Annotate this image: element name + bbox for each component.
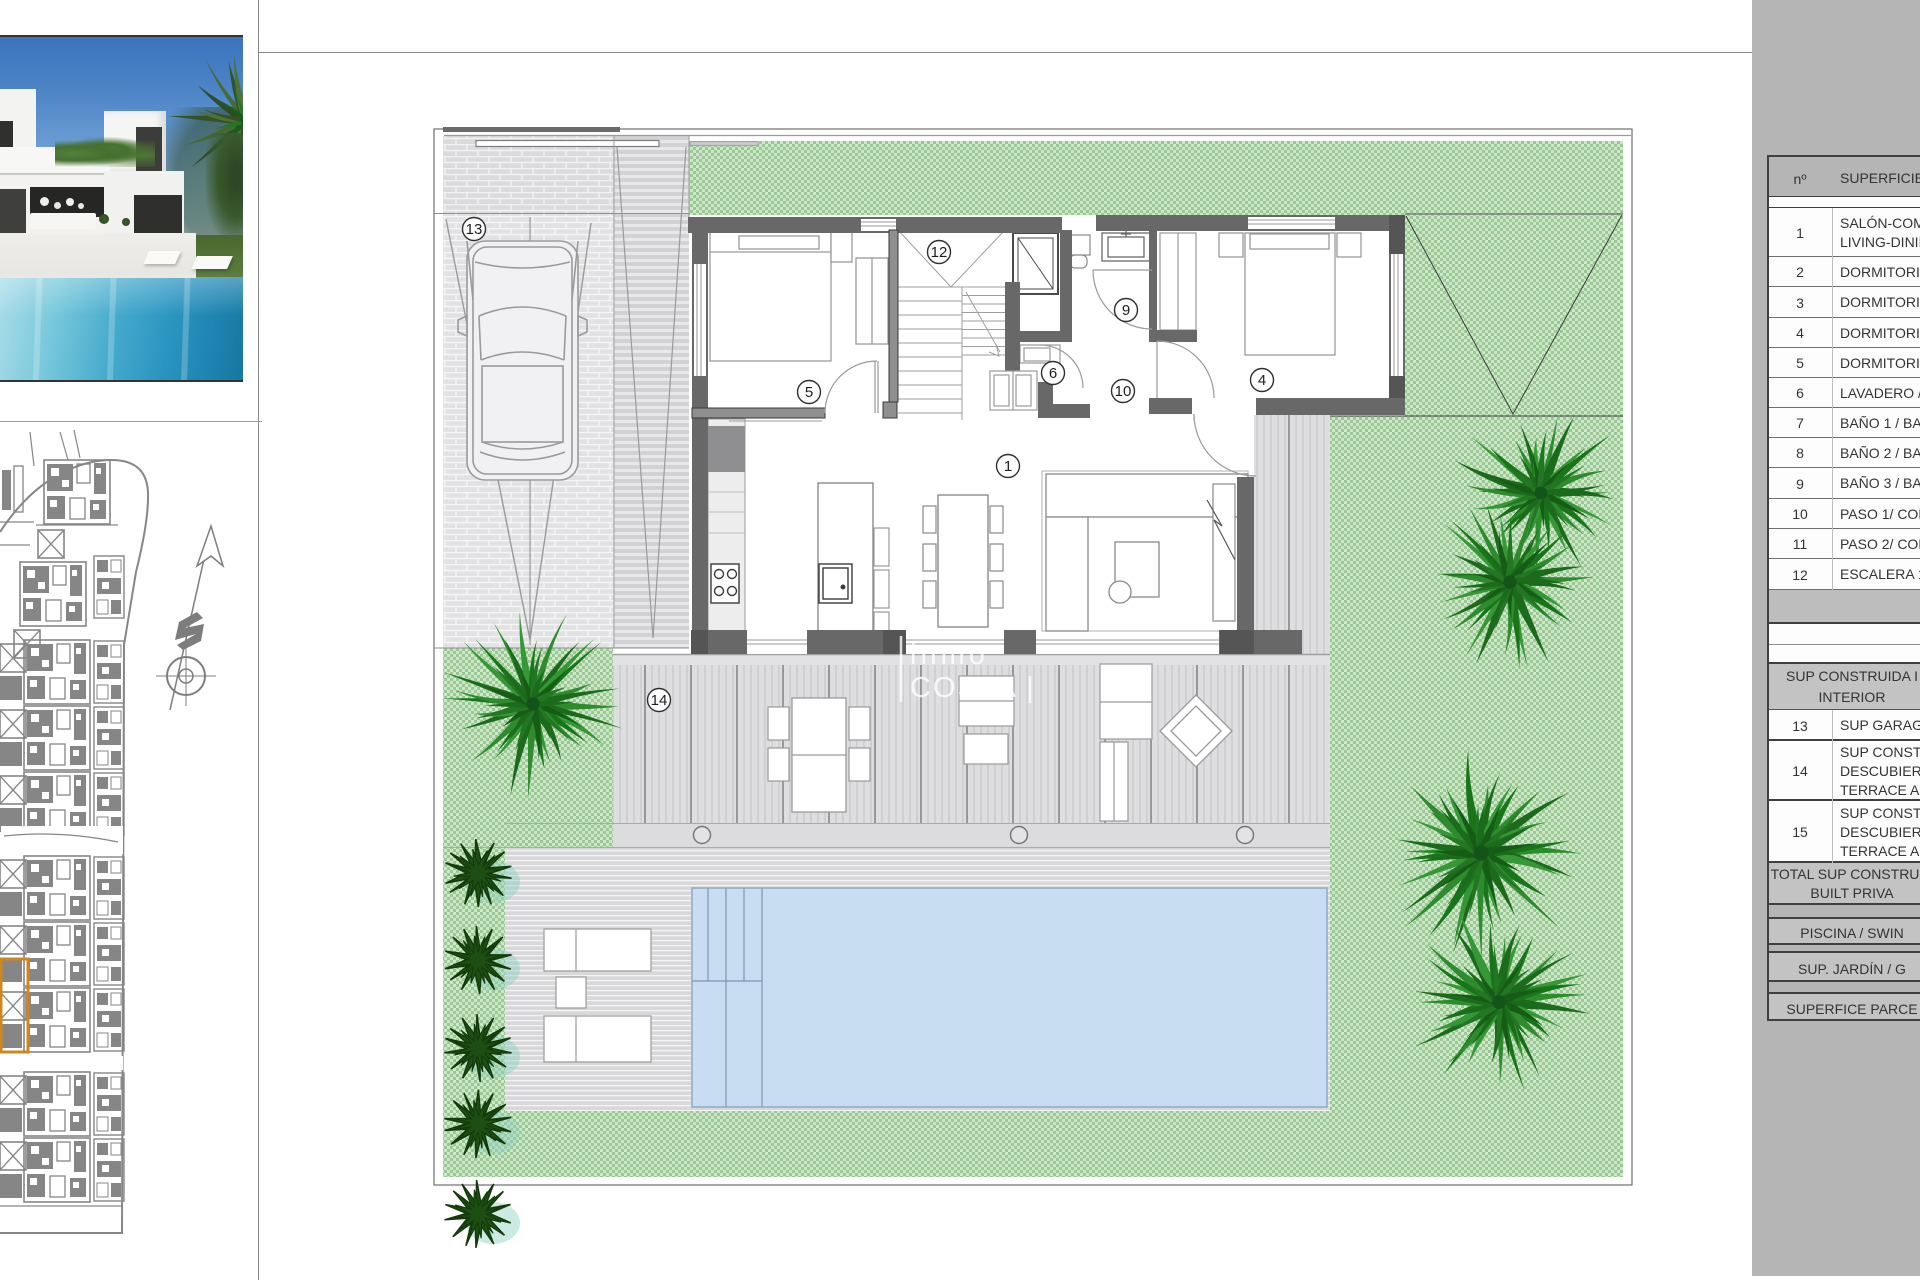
- svg-text:1: 1: [1004, 458, 1012, 475]
- svg-text:9: 9: [1122, 302, 1130, 319]
- svg-text:5: 5: [805, 384, 813, 401]
- svg-text:inmo: inmo: [910, 639, 989, 671]
- svg-text:4: 4: [1258, 372, 1266, 389]
- svg-text:13: 13: [466, 221, 483, 238]
- svg-text:COSTA |: COSTA |: [910, 672, 1036, 704]
- svg-text:6: 6: [1049, 365, 1057, 382]
- svg-text:10: 10: [1115, 383, 1132, 400]
- svg-text:14: 14: [651, 692, 668, 709]
- svg-text:12: 12: [931, 244, 948, 261]
